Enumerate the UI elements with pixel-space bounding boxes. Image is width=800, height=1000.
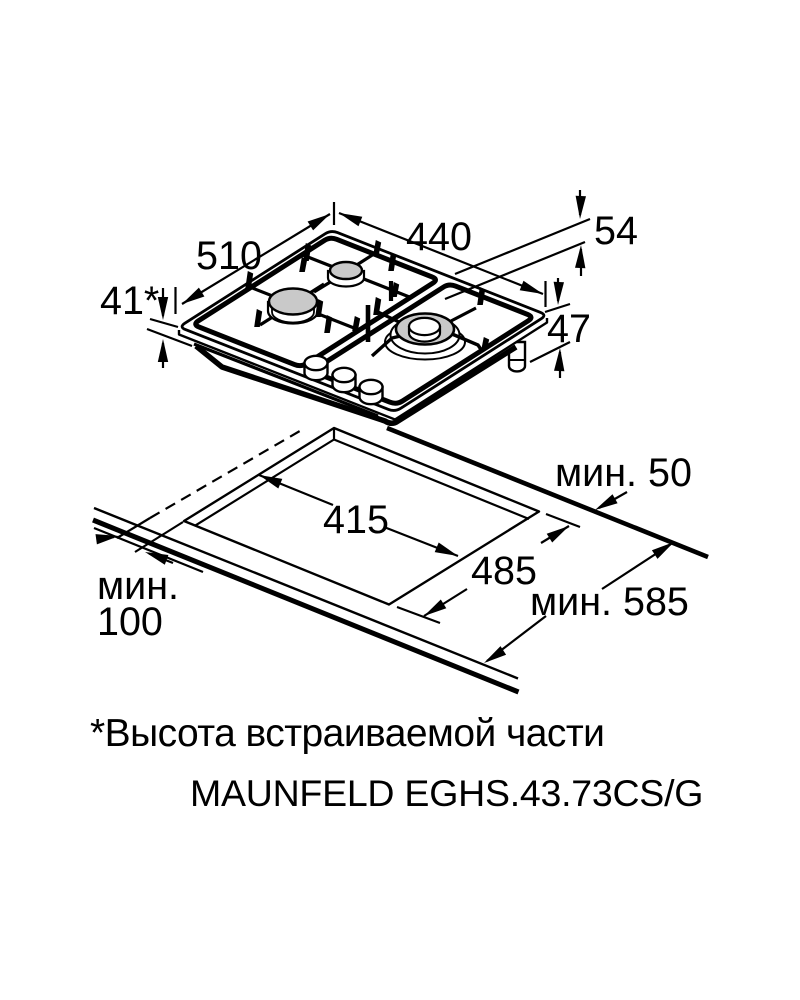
- svg-text:*Высота встраиваемой части: *Высота встраиваемой части: [90, 712, 604, 755]
- svg-text:510: 510: [196, 234, 262, 278]
- svg-text:мин. 50: мин. 50: [555, 451, 692, 495]
- svg-text:54: 54: [594, 209, 638, 253]
- svg-text:100: 100: [97, 600, 163, 644]
- svg-text:41*: 41*: [100, 279, 159, 323]
- svg-text:440: 440: [406, 215, 472, 259]
- svg-text:мин. 585: мин. 585: [530, 580, 689, 624]
- svg-text:415: 415: [323, 498, 389, 542]
- svg-text:485: 485: [471, 549, 537, 593]
- svg-text:MAUNFELD EGHS.43.73CS/G: MAUNFELD EGHS.43.73CS/G: [190, 772, 703, 814]
- svg-text:47: 47: [547, 307, 591, 351]
